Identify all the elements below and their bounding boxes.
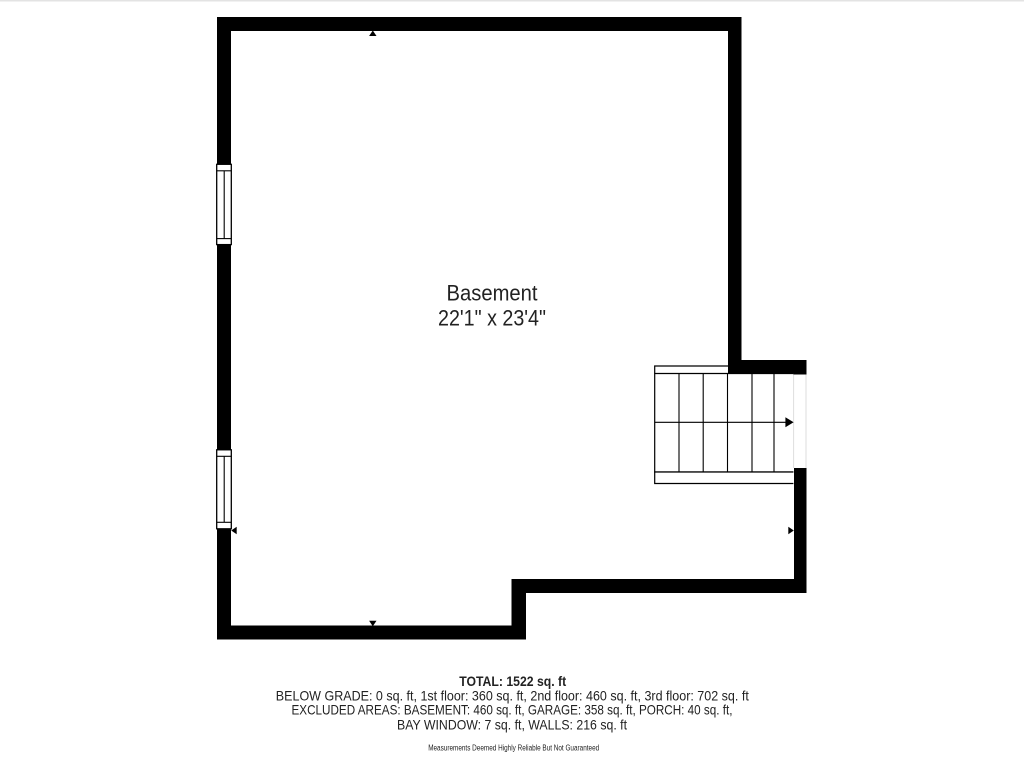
svg-text:EXCLUDED AREAS: BASEMENT: 460: EXCLUDED AREAS: BASEMENT: 460 sq. ft, GA… — [292, 702, 733, 718]
svg-text:22'1" x 23'4": 22'1" x 23'4" — [438, 306, 546, 331]
svg-text:Basement: Basement — [447, 280, 538, 305]
svg-text:BAY WINDOW: 7 sq. ft, WALLS: 2: BAY WINDOW: 7 sq. ft, WALLS: 216 sq. ft — [397, 717, 627, 733]
svg-text:Measurements Deemed Highly Rel: Measurements Deemed Highly Reliable But … — [428, 744, 599, 753]
